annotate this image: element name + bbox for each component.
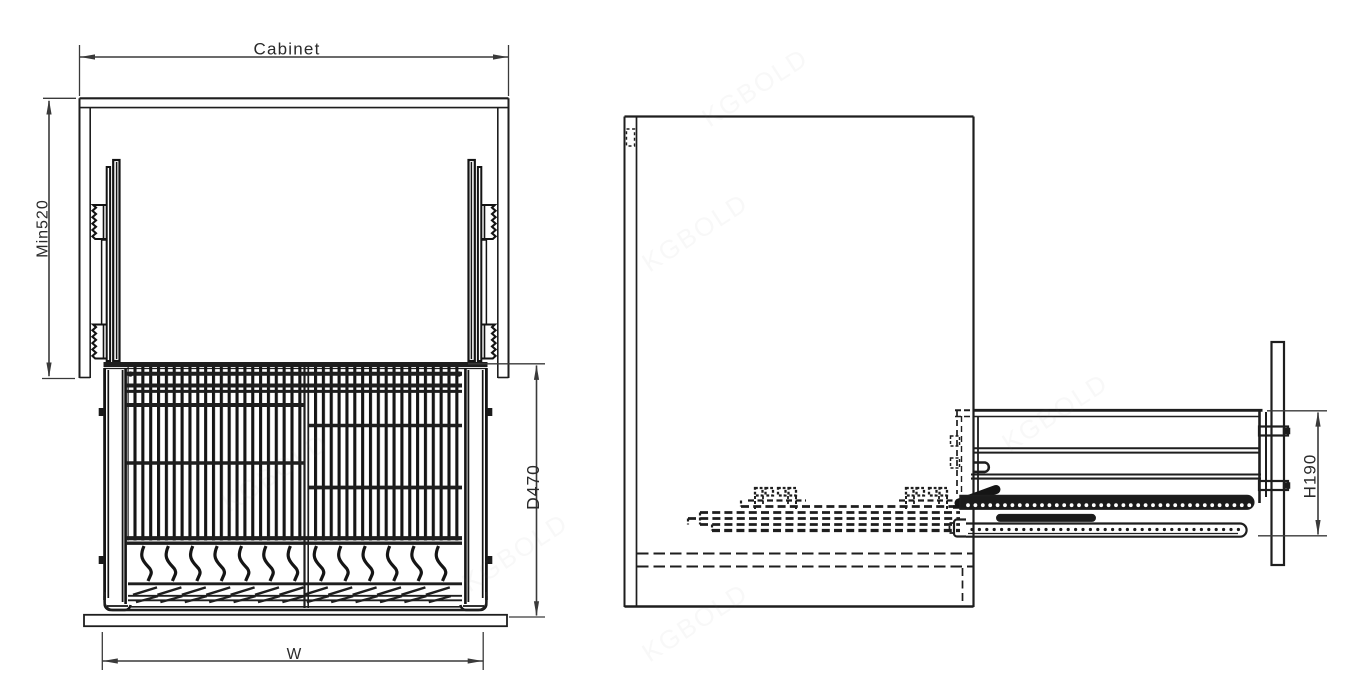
svg-text:W: W: [287, 646, 303, 663]
svg-text:D470: D470: [523, 464, 543, 510]
svg-text:Cabinet: Cabinet: [254, 40, 321, 59]
svg-text:H190: H190: [1301, 454, 1320, 499]
svg-text:Min520: Min520: [35, 199, 52, 257]
